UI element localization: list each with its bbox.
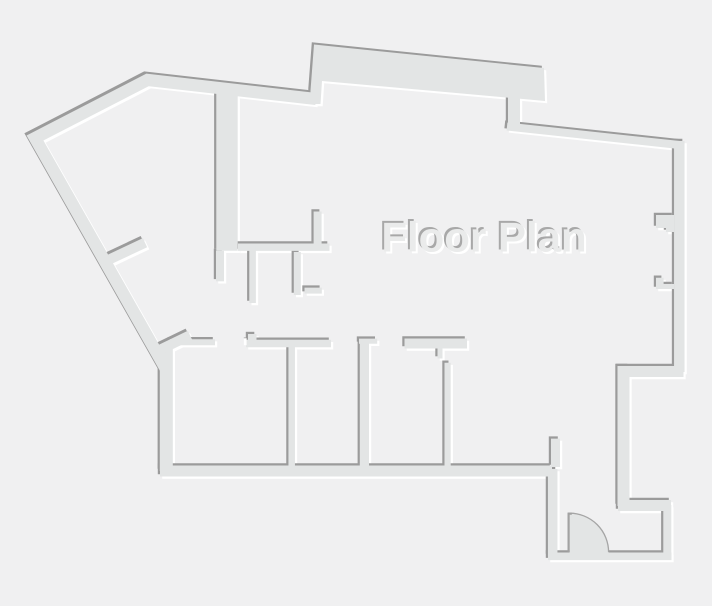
svg-text:Floor Plan: Floor Plan — [381, 214, 586, 261]
